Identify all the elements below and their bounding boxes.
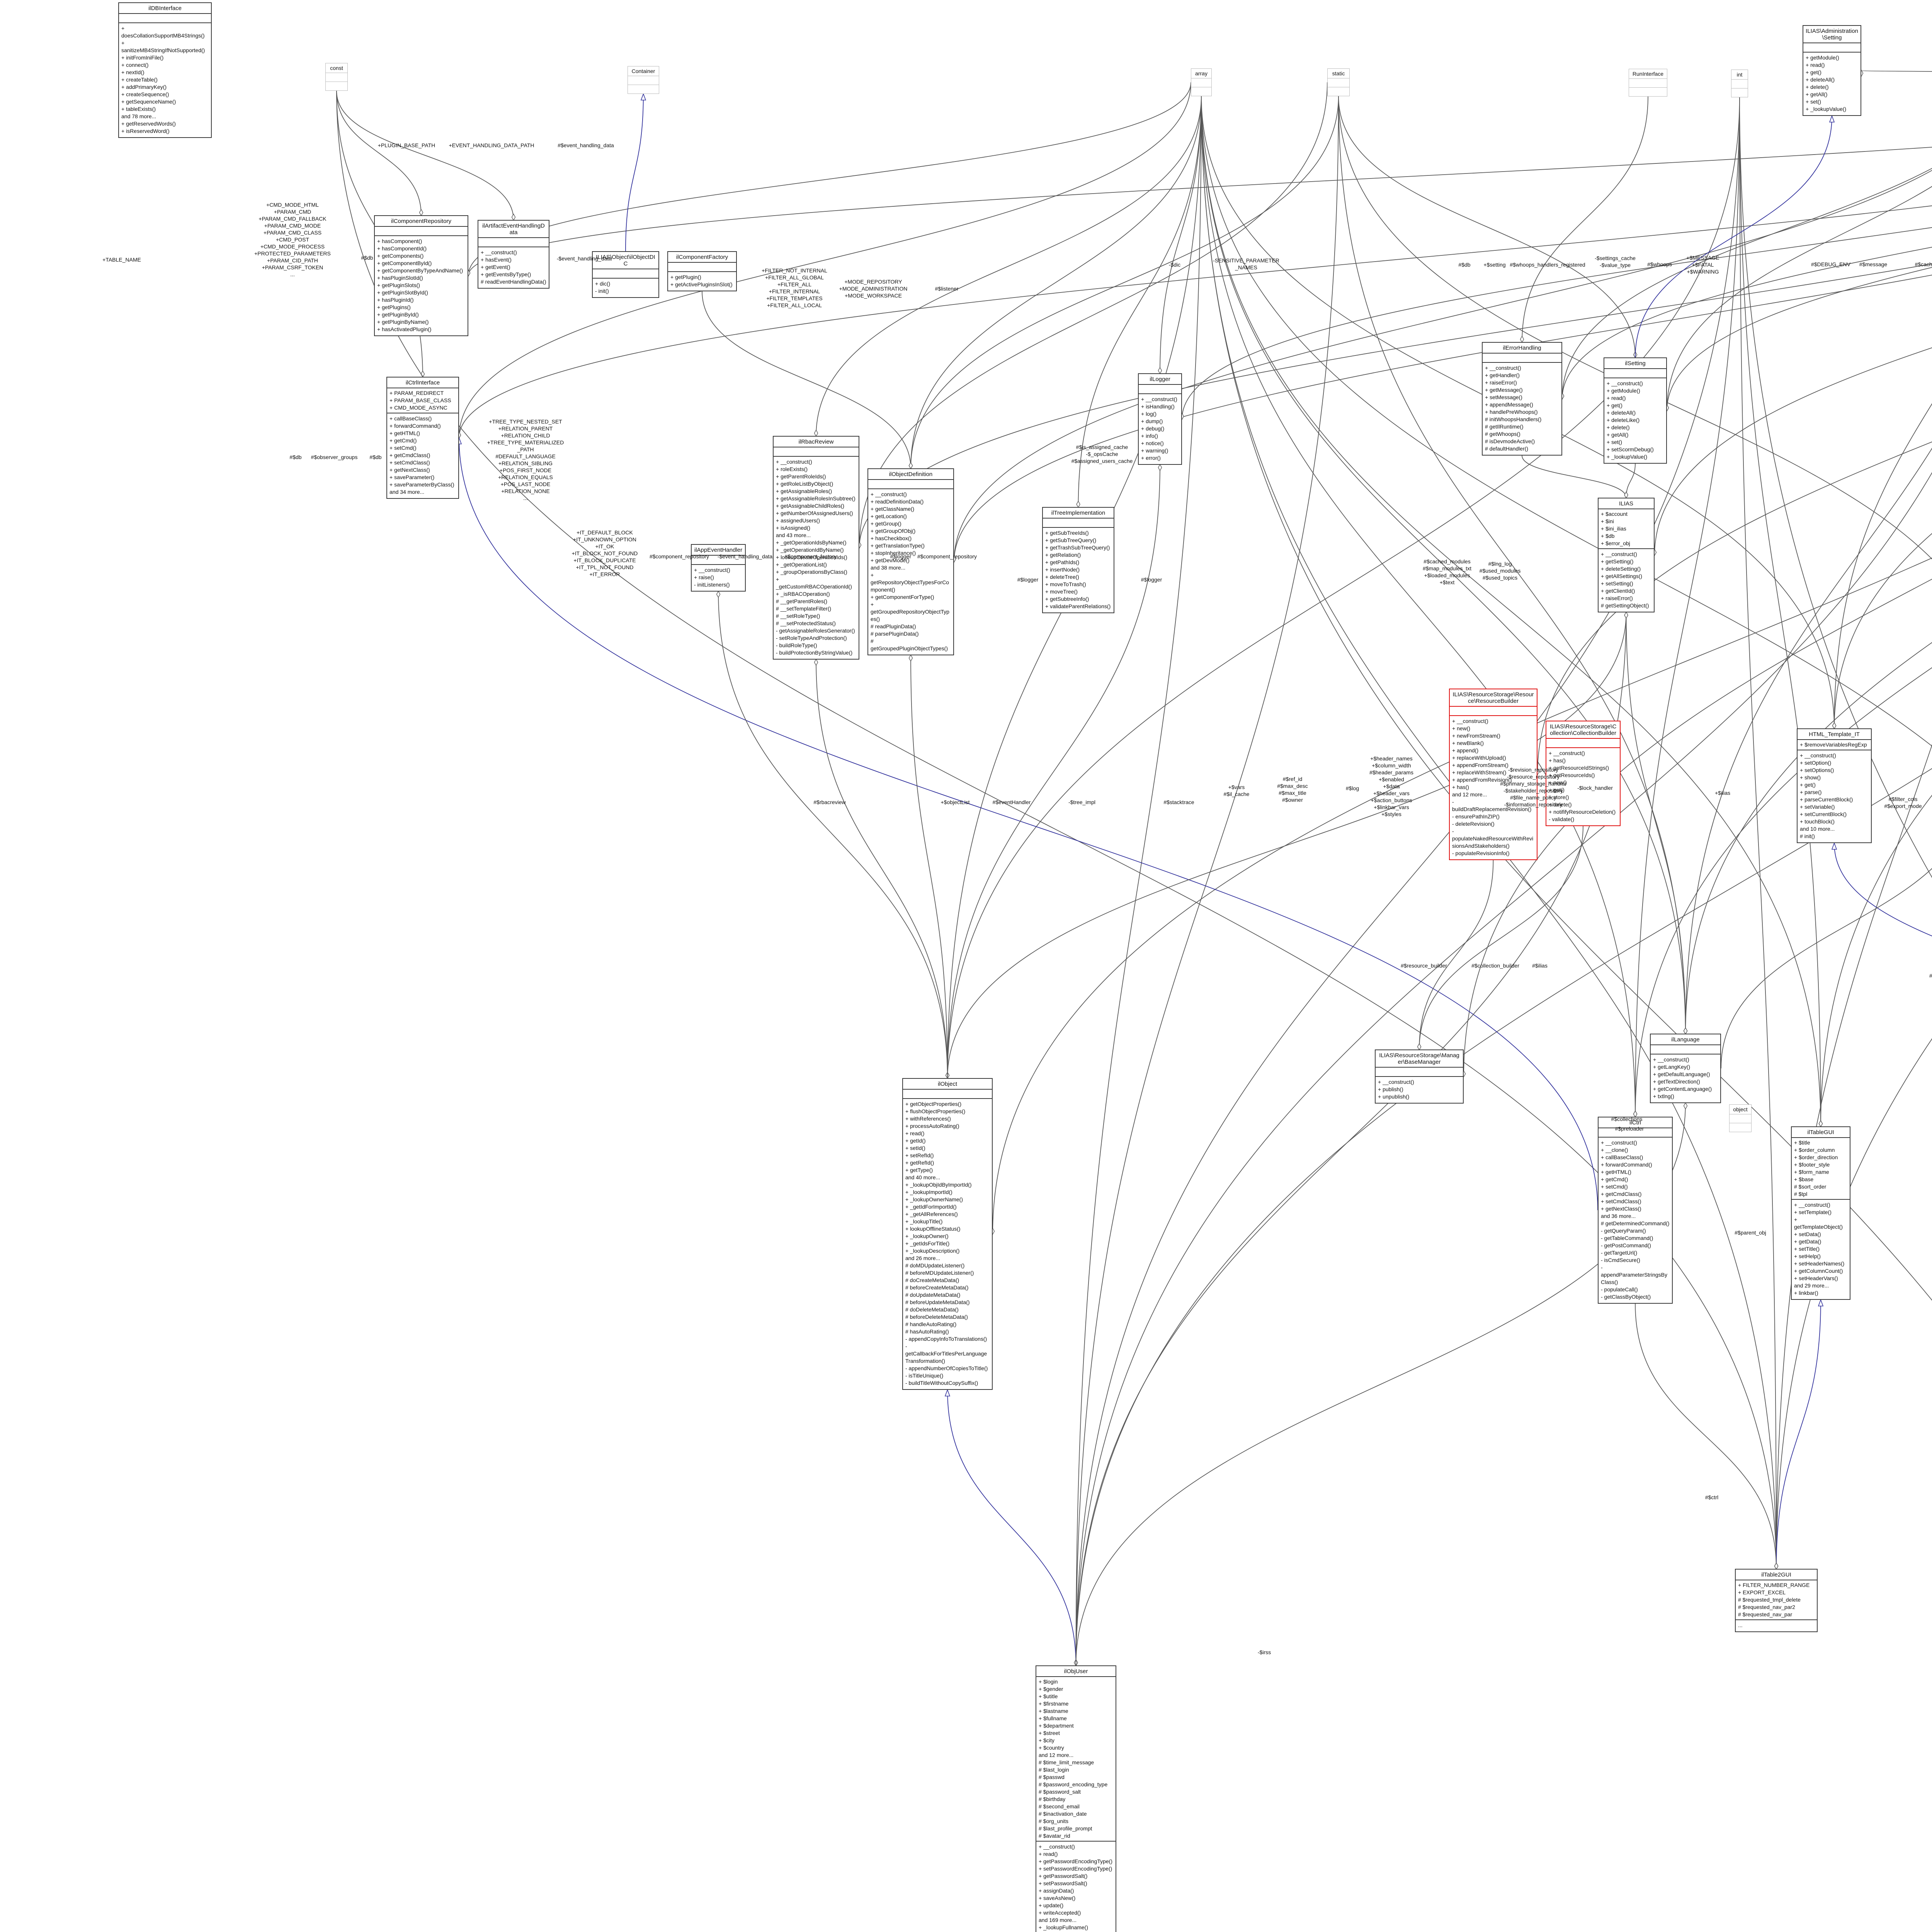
edge-label-line: #$component_factory (785, 553, 837, 560)
edge-label-line: #$observer_groups (311, 454, 358, 461)
method-line: + getReservedWords() (121, 120, 209, 128)
class-ilartifacteventhandlingdata[interactable]: ilArtifactEventHandlingData+ __construct… (478, 220, 549, 289)
method-line: + __construct() (1607, 380, 1664, 387)
method-line: and 40 more... (905, 1174, 990, 1181)
method-line: + setCmdClass() (1601, 1198, 1670, 1205)
method-line: + getObjectProperties() (905, 1100, 990, 1108)
edge-layer (0, 0, 1932, 1932)
aggregation-edge (1740, 97, 1932, 1932)
method-line: + getSubTreeQuery() (1045, 537, 1111, 544)
edge-label-line: #$event_handling_data (558, 142, 614, 149)
attribute-line: + $street (1039, 1730, 1113, 1737)
method-line: + saveParameterByClass() (389, 481, 456, 488)
edge-label-line: +PARAM_CMD (254, 208, 331, 215)
edge-label-line: +IT_TPL_NOT_FOUND (572, 564, 638, 571)
edge-label-line: _PATH (487, 446, 564, 453)
method-line: + getRelation() (1045, 551, 1111, 559)
edge-label: +$MESSAGE+$FATAL+$WARNING (1686, 254, 1719, 275)
edge-label-line: +MODE_ADMINISTRATION (839, 285, 908, 292)
method-line: + setVariable() (1800, 803, 1869, 811)
method-line: + getPlugin() (670, 274, 734, 281)
method-line: # handleAutoRating() (905, 1321, 990, 1328)
method-line: + __construct() (1800, 752, 1869, 759)
method-line: + tableExists() (121, 105, 209, 113)
method-line: - isCmdSecure() (1601, 1257, 1670, 1264)
method-line: + read() (905, 1130, 990, 1137)
method-line: + validateParentRelations() (1045, 603, 1111, 610)
class-ilrbacreview[interactable]: ilRbacReview+ __construct()+ roleExists(… (773, 436, 859, 660)
class-container[interactable]: Container (628, 66, 659, 94)
attribute-line: + $firstname (1039, 1700, 1113, 1708)
method-line: - isTitleUnique() (905, 1372, 990, 1379)
class-ilobject[interactable]: ilObject+ getObjectProperties()+ flushOb… (902, 1078, 993, 1390)
method-line: + getPluginByName() (377, 318, 465, 326)
method-line: + deleteLike() (1607, 417, 1664, 424)
attribute-line: + EXPORT_EXCEL (1738, 1589, 1815, 1596)
class-ilappeventhandler[interactable]: ilAppEventHandler+ __construct()+ raise(… (691, 544, 746, 592)
method-line: + hasPluginId() (377, 296, 465, 304)
aggregation-edge (1562, 52, 1932, 399)
edge-label: #$component_factory (785, 553, 837, 560)
edge-label-line: +PROTECTED_PARAMETERS (254, 250, 331, 257)
method-line: # readPluginData() (871, 623, 951, 630)
method-line: + setHeaderNames() (1794, 1260, 1847, 1267)
edge-label-line: #$max_desc (1277, 782, 1308, 789)
method-line: + _lookupOwner() (905, 1233, 990, 1240)
edge-label-line: +PARAM_CMD_MODE (254, 222, 331, 229)
attribute-line: # $last_login (1039, 1766, 1113, 1774)
class-ilobjectdefinition[interactable]: ilObjectDefinition+ __construct()+ readD… (867, 468, 954, 655)
method-line: + deleteTree() (1045, 573, 1111, 581)
class-attributes (119, 14, 211, 23)
edge-label-line: #$filter_cols (1884, 796, 1922, 803)
class-array[interactable]: array (1191, 68, 1212, 96)
method-line: + _lookupFullname() (1039, 1924, 1113, 1931)
edge-label-line: #$export_mode (1884, 803, 1922, 810)
class-iltreeimplementation[interactable]: ilTreeImplementation+ getSubTreeIds()+ g… (1042, 507, 1114, 613)
attribute-line: # $tpl (1794, 1190, 1847, 1198)
attribute-line: # $requested_nav_par2 (1738, 1604, 1815, 1611)
class-methods: + __construct()+ hasEvent()+ getEvent()+… (478, 247, 549, 288)
edge-label: #$collection_builder (1471, 962, 1519, 969)
method-line: + setTemplate() (1794, 1209, 1847, 1216)
edge-label: #$whoops (1647, 261, 1672, 268)
class-illogger[interactable]: ilLogger+ __construct()+ isHandling()+ l… (1138, 373, 1182, 465)
edge-label-line: _NAMES (1213, 264, 1279, 271)
method-line: + initFromIniFile() (121, 54, 209, 61)
edge-label-line: +$column_width (1369, 762, 1413, 769)
edge-label-line: #$il_cache (1224, 791, 1250, 798)
edge-label-line: ... (254, 271, 331, 278)
aggregation-edge (1076, 66, 1932, 1665)
method-line: + getId() (905, 1137, 990, 1145)
edge-label-line: #$db (361, 254, 373, 261)
method-line: # getGroupedPluginObjectTypes() (871, 638, 951, 652)
method-line: # getSettingObject() (1601, 602, 1651, 609)
edge-label-line: #$collection_builder (1471, 962, 1519, 969)
method-line: - initListeners() (694, 581, 743, 588)
edge-label-line: +TREE_TYPE_NESTED_SET (487, 418, 564, 425)
type-node-compartment (1629, 79, 1667, 88)
method-line: + _lookupImportId() (905, 1189, 990, 1196)
edge-label-line: +FILTER_ALL_LOCAL (762, 302, 827, 309)
class-attributes (1376, 1068, 1463, 1077)
edge-label-line: #$header_params (1369, 769, 1413, 776)
method-line: + getSubtreeInfo() (1045, 595, 1111, 603)
method-line: + connect() (121, 61, 209, 69)
method-line: + _getIdForImportId() (905, 1203, 990, 1211)
method-line: + getAssignableRolesInSubtree() (776, 495, 856, 502)
method-line: # readEventHandlingData() (481, 278, 546, 286)
edge-label-line: +FILTER_ALL (762, 281, 827, 288)
edge-label-line: #$db (1458, 261, 1470, 268)
type-node-compartment (628, 76, 659, 85)
attribute-line: # $inactivation_date (1039, 1810, 1113, 1818)
edge-label-line: #$max_title (1277, 789, 1308, 796)
method-line: + insertNode() (1045, 566, 1111, 573)
edge-label-line: +PARAM_CSRF_TOKEN (254, 264, 331, 271)
edge-label-line: +FILTER_ALL_GLOBAL (762, 274, 827, 281)
class-title: ilLanguage (1651, 1034, 1720, 1045)
class-ilctrl[interactable]: ilCtrl+ __construct()+ __clone()+ callBa… (1598, 1117, 1673, 1304)
class-title: ilCtrlInterface (387, 378, 458, 388)
method-line: - getClassByObject() (1601, 1293, 1670, 1301)
method-line: - getPostCommand() (1601, 1242, 1670, 1249)
edge-label: -$settings_cache-$value_type (1595, 255, 1636, 269)
edge-label: +IT_DEFAULT_BLOCK+IT_UNKNOWN_OPTION+IT_O… (572, 529, 638, 578)
class-attributes: + $removeVariablesRegExp (1798, 740, 1871, 750)
edge-label: #$cache_disabled (1915, 261, 1932, 268)
method-line: + hasEvent() (481, 256, 546, 264)
method-line: # getDeterminedCommand() (1601, 1220, 1670, 1227)
edge-label-line: +IT_UNKNOWN_OPTION (572, 536, 638, 543)
method-line: + getTrashSubTreeQuery() (1045, 544, 1111, 551)
attribute-line: # $password_encoding_type (1039, 1781, 1113, 1788)
class-attributes (1546, 739, 1620, 748)
class-methods: + dic()- init() (593, 279, 658, 297)
edge-label: +$objectList (940, 799, 969, 806)
edge-label-line: #$parent_obj (1735, 1229, 1766, 1236)
method-line: + setMessage() (1485, 394, 1559, 401)
method-line: + createTable() (121, 76, 209, 83)
edge-label-line: +RELATION_EQUALS (487, 474, 564, 481)
edge-label-line: -$value_type (1595, 262, 1636, 269)
method-line: + getCmd() (389, 437, 456, 444)
aggregation-edge (1076, 1103, 1686, 1665)
method-line: + getRoleListByObject() (776, 480, 856, 488)
method-line: + getHandler() (1485, 372, 1559, 379)
method-line: # getWhoops() (1485, 430, 1559, 438)
method-line: + __construct() (1794, 1201, 1847, 1209)
edge-label: #$stacktrace (1163, 799, 1194, 806)
method-line: + moveToTrash() (1045, 581, 1111, 588)
class-iltable2gui[interactable]: ilTable2GUI+ FILTER_NUMBER_RANGE+ EXPORT… (1735, 1569, 1818, 1632)
class-object[interactable]: object (1729, 1104, 1752, 1132)
class-ilias-resourcestorage-manager-basemanager[interactable]: ILIAS\ResourceStorage\Manager\BaseManage… (1375, 1049, 1464, 1104)
method-line: + deleteSetting() (1601, 565, 1651, 573)
method-line: + getHTML() (389, 430, 456, 437)
class-methods: + __construct()+ setTemplate()+ getTempl… (1792, 1200, 1850, 1299)
class-methods: + __construct()+ isHandling()+ log()+ du… (1139, 394, 1181, 464)
aggregation-edge (337, 91, 1776, 1569)
attribute-line: + $ini_ilias (1601, 525, 1651, 532)
method-line: + setId() (905, 1145, 990, 1152)
class-runinterface[interactable]: RunInterface (1629, 69, 1667, 97)
edge-label-line: +$objectList (940, 799, 969, 806)
method-line: + getPluginSlots() (377, 282, 465, 289)
method-line: # defaultHandler() (1485, 445, 1559, 452)
edge-label-line: #$used_modules (1480, 567, 1521, 574)
class-title: ilTable2GUI (1736, 1570, 1817, 1580)
method-line: + _lookupValue() (1607, 453, 1664, 461)
class-methods: + getSubTreeIds()+ getSubTreeQuery()+ ge… (1043, 528, 1114, 612)
edge-label: #$parent_obj (1735, 1229, 1766, 1236)
method-line: # beforeDeleteMetaData() (905, 1313, 990, 1321)
edge-label-line: -$event_handling_data (557, 255, 612, 262)
edge-label-line: +TREE_TYPE_MATERIALIZED (487, 439, 564, 446)
attribute-line: + $utitle (1039, 1693, 1113, 1700)
class-attributes: + $account+ $ini+ $ini_ilias+ $db+ $erro… (1599, 509, 1654, 549)
method-line: + notice() (1141, 440, 1179, 447)
class-title: ilComponentFactory (668, 252, 736, 263)
class-methods: + __construct()+ getLangKey()+ getDefaul… (1651, 1054, 1720, 1102)
method-line: + roleExists() (776, 466, 856, 473)
edge-label-line: +$WARNING (1686, 268, 1719, 275)
attribute-line: + $removeVariablesRegExp (1800, 741, 1869, 748)
edge-label-line: #$collections (1611, 1116, 1643, 1122)
method-line: + linkbar() (1794, 1289, 1847, 1297)
method-line: + __construct() (1601, 1139, 1670, 1146)
edge-label: #$db (369, 454, 381, 461)
class-attributes (593, 269, 658, 279)
method-line: + getSequenceName() (121, 98, 209, 105)
edge-label-line: +IT_BLOCK_NOT_FOUND (572, 550, 638, 557)
class-title: ilRbacReview (774, 437, 859, 447)
method-line: + assignData() (1039, 1887, 1113, 1895)
method-line: + get() (1800, 781, 1869, 789)
class-illanguage[interactable]: ilLanguage+ __construct()+ getLangKey()+… (1650, 1034, 1721, 1103)
method-line: + getComponentByTypeAndName() (377, 267, 465, 274)
edge-label-line: +IT_BLOCK_DUPLICATE (572, 557, 638, 564)
edge-label: #$event_handling_data (558, 142, 614, 149)
method-line: + moveTree() (1045, 588, 1111, 595)
method-line: + getComponents() (377, 252, 465, 260)
edge-label-line: -$event_handling_data (718, 553, 772, 560)
class-ilctrlinterface[interactable]: ilCtrlInterface+ PARAM_REDIRECT+ PARAM_B… (386, 377, 459, 499)
class-const[interactable]: const (325, 63, 348, 91)
edge-label-line: +CMD_POST (254, 236, 331, 243)
attribute-line: # $passwd (1039, 1774, 1113, 1781)
class-ilcomponentfactory[interactable]: ilComponentFactory+ getPlugin()+ getActi… (667, 251, 737, 291)
edge-label-line: #$whoops (1647, 261, 1672, 268)
edge-label-line: -SENSITIVE_PARAMETER (1213, 257, 1279, 264)
class-ilerrorhandling[interactable]: ilErrorHandling+ __construct()+ getHandl… (1482, 342, 1562, 456)
method-line: - buildTitleWithoutCopySuffix() (905, 1379, 990, 1387)
attribute-line: # $password_salt (1039, 1788, 1113, 1796)
class-attributes: + $title+ $order_column+ $order_directio… (1792, 1138, 1850, 1200)
method-line: + addPrimaryKey() (121, 83, 209, 91)
method-line: + isAssigned() (776, 524, 856, 532)
method-line: + show() (1800, 774, 1869, 781)
method-line: + setCmd() (389, 444, 456, 452)
method-line: + getNumberOfAssignedUsers() (776, 510, 856, 517)
method-line: + setHeaderVars() (1794, 1275, 1847, 1282)
method-line: # __getParentRoles() (776, 598, 856, 605)
attribute-line: + $gender (1039, 1685, 1113, 1693)
method-line: + getData() (1794, 1238, 1847, 1245)
edge-label: #$logger (1141, 576, 1162, 583)
method-line: + getTemplateObject() (1794, 1216, 1847, 1231)
class-methods: + __construct()+ readDefinitionData()+ g… (868, 489, 953, 655)
edge-label: #$preloader (1615, 1125, 1644, 1132)
edge-label-line: #$stacktrace (1163, 799, 1194, 806)
edge-label: #$lng_log#$used_modules#$used_topics (1480, 560, 1521, 581)
method-line: and 34 more... (389, 488, 456, 496)
method-line: - getTableCommand() (1601, 1235, 1670, 1242)
class-int[interactable]: int (1731, 70, 1748, 97)
class-title: ILIAS\Administration\Setting (1803, 26, 1861, 43)
attribute-line: + $department (1039, 1722, 1113, 1730)
edge-label-line: #$whoops_handlers_registered (1510, 261, 1585, 268)
edge-label: -$event_handling_data (718, 553, 772, 560)
class-attributes (1043, 519, 1114, 528)
edge-label-line: -$tree_impl (1068, 799, 1095, 806)
edge-label-line: #$logger (1141, 576, 1162, 583)
type-node-compartment (326, 82, 347, 90)
method-line: + set() (1607, 439, 1664, 446)
aggregation-edge (859, 74, 1932, 548)
edge-label: -$event_handling_data (557, 255, 612, 262)
method-line: + read() (1039, 1850, 1113, 1858)
class-attributes (1803, 43, 1861, 53)
class-methods: ... (1736, 1620, 1817, 1631)
method-line: + delete() (1607, 424, 1664, 431)
edge-label: +TREE_TYPE_NESTED_SET+RELATION_PARENT+RE… (487, 418, 564, 502)
method-line: - validate() (1549, 816, 1617, 823)
method-line: + deleteAll() (1806, 76, 1858, 83)
class-static[interactable]: static (1327, 68, 1350, 96)
aggregation-edge (1667, 74, 1932, 411)
type-node-compartment (1191, 78, 1211, 87)
edge-label-line: -$information_repository (1500, 801, 1566, 808)
method-line: + raiseError() (1485, 379, 1559, 386)
class-methods: + getModule()+ read()+ get()+ deleteAll(… (1803, 53, 1861, 115)
edge-label: #$cached_modules#$map_modules_txt+$loade… (1423, 558, 1471, 586)
edge-label-line: -$revision_repository (1500, 766, 1566, 773)
attribute-line: # $requested_nav_par (1738, 1611, 1815, 1618)
method-line: ... (1738, 1622, 1815, 1629)
edge-label-line: #DEFAULT_LANGUAGE (487, 453, 564, 460)
method-line: + __construct() (1485, 364, 1559, 372)
method-line: + isReservedWord() (121, 128, 209, 135)
inheritance-edge (1834, 843, 1932, 1061)
method-line: + isHandling() (1141, 403, 1179, 410)
edge-label-line: +$MESSAGE (1686, 254, 1719, 261)
method-line: # getIlRuntime() (1485, 423, 1559, 430)
attribute-line: + $db (1601, 532, 1651, 540)
edge-label-line: ... (487, 495, 564, 502)
method-line: + getClientId() (1601, 587, 1651, 595)
edge-label-line: -$_opsCache (1071, 451, 1133, 457)
method-line: + parseCurrentBlock() (1800, 796, 1869, 803)
class-title: ILIAS\ResourceStorage\Collection\Collect… (1546, 721, 1620, 739)
aggregation-edge (1667, 52, 1932, 411)
edge-label-line: +MODE_REPOSITORY (839, 278, 908, 285)
class-methods: + hasComponent()+ hasComponentId()+ getC… (375, 236, 468, 335)
method-line: + getActivePluginsInSlot() (670, 281, 734, 288)
method-line: + setScormDebug() (1607, 446, 1664, 453)
aggregation-edge (1821, 88, 1932, 1126)
class-ilcomponentrepository[interactable]: ilComponentRepository+ hasComponent()+ h… (374, 215, 468, 336)
edge-label-line: +PLUGIN_BASE_PATH (378, 142, 435, 149)
attribute-line: + $ini (1601, 518, 1651, 525)
method-line: + setSetting() (1601, 580, 1651, 587)
edge-label-line: #$DEBUG_ENV (1811, 261, 1850, 268)
edge-label-line: +$FATAL (1686, 261, 1719, 268)
class-html-template-it[interactable]: HTML_Template_IT+ $removeVariablesRegExp… (1797, 728, 1872, 843)
method-line: and 26 more... (905, 1255, 990, 1262)
aggregation-edge (1834, 66, 1932, 728)
method-line: + getDefaultLanguage() (1653, 1071, 1718, 1078)
aggregation-edge (1160, 96, 1201, 373)
method-line: - appendNumberOfCopiesToTitle() (905, 1365, 990, 1372)
class-methods: + __construct()+ publish()+ unpublish() (1376, 1077, 1463, 1103)
class-ildbinterface[interactable]: ilDBInterface+ doesCollationSupportMB4St… (118, 2, 212, 138)
edge-label-line: +$linkbar_vars (1369, 804, 1413, 811)
class-ilias-administration-setting[interactable]: ILIAS\Administration\Setting+ getModule(… (1803, 25, 1861, 116)
method-line: - appendCopyInfoToTranslations() (905, 1335, 990, 1343)
aggregation-edge (954, 52, 1932, 562)
type-node-title: static (1328, 69, 1349, 78)
class-ilias[interactable]: ILIAS+ $account+ $ini+ $ini_ilias+ $db+ … (1598, 498, 1655, 612)
aggregation-edge (816, 660, 947, 1078)
edge-label-line: #$lng_log (1480, 560, 1521, 567)
method-line: + debug() (1141, 425, 1179, 432)
method-line: + getModule() (1607, 387, 1664, 395)
class-iltablegui[interactable]: ilTableGUI+ $title+ $order_column+ $orde… (1791, 1126, 1850, 1300)
edge-label: +CMD_MODE_HTML+PARAM_CMD+PARAM_CMD_FALLB… (254, 201, 331, 278)
method-line: + __construct() (871, 491, 951, 498)
method-line: + getAssignableChildRoles() (776, 502, 856, 510)
edge-label-line: #$used_topics (1480, 574, 1521, 581)
class-ilobjuser[interactable]: ilObjUser+ $login+ $gender+ $utitle+ $fi… (1036, 1665, 1116, 1932)
edge-label-line: +RELATION_CHILD (487, 432, 564, 439)
edge-label-line: #$is_assigned_cache (1071, 444, 1133, 451)
attribute-line: + PARAM_BASE_CLASS (389, 397, 456, 404)
method-line: - buildProtectionByStringValue() (776, 649, 856, 656)
method-line: + _getAllReferences() (905, 1211, 990, 1218)
method-line: + setHelp() (1794, 1253, 1847, 1260)
class-ilsetting[interactable]: ilSetting+ __construct()+ getModule()+ r… (1604, 357, 1667, 464)
method-line: - getTargetUrl() (1601, 1249, 1670, 1257)
method-line: # doUpdateMetaData() (905, 1291, 990, 1299)
edge-label-line: +FILTER_TEMPLATES (762, 295, 827, 302)
edge-label-line: #$assigned_users_cache (1071, 457, 1133, 464)
method-line: + getGroupedRepositoryObjectTypes() (871, 601, 951, 623)
method-line: # __setTemplateFilter() (776, 605, 856, 612)
edge-label: +FILTER_NOT_INTERNAL+FILTER_ALL_GLOBAL+F… (762, 267, 827, 309)
aggregation-edge (1740, 97, 1776, 1569)
aggregation-edge (1740, 97, 1821, 1126)
method-line: + _lookupObjIdByImportId() (905, 1181, 990, 1189)
method-line: + _lookupValue() (1806, 105, 1858, 113)
method-line: + __construct() (481, 249, 546, 256)
method-line: + getLangKey() (1653, 1063, 1718, 1071)
method-line: + set() (1806, 98, 1858, 105)
edge-label: -$tree_impl (1068, 799, 1095, 806)
method-line: + hasPluginSlotId() (377, 274, 465, 282)
method-line: + getModule() (1806, 54, 1858, 61)
